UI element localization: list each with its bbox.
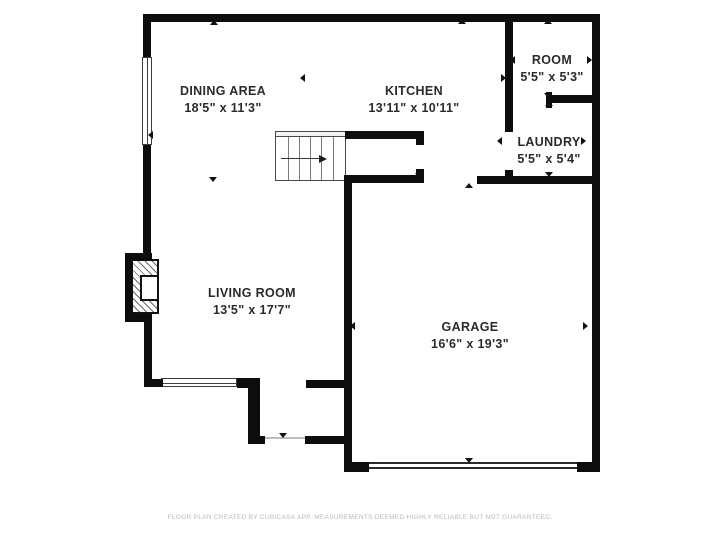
wall-segment bbox=[345, 131, 424, 139]
wall-segment bbox=[248, 436, 265, 444]
room-name: LIVING ROOM bbox=[208, 285, 296, 302]
wall-segment bbox=[144, 314, 152, 387]
fireplace-firebox bbox=[140, 275, 159, 301]
wall-segment bbox=[477, 176, 600, 184]
stair-direction-arrow bbox=[281, 158, 319, 159]
dimension-tick-icon bbox=[209, 177, 217, 182]
dimension-tick-icon bbox=[279, 433, 287, 438]
wall-segment bbox=[416, 131, 424, 145]
wall-segment bbox=[306, 380, 345, 388]
dimension-tick-icon bbox=[415, 173, 423, 178]
room-dimensions: 5'5" x 5'4" bbox=[517, 151, 580, 168]
dimension-tick-icon bbox=[148, 131, 153, 139]
wall-segment bbox=[125, 253, 133, 322]
staircase bbox=[275, 131, 346, 181]
room-dimensions: 13'5" x 17'7" bbox=[208, 302, 296, 319]
room-label-dining-area: DINING AREA 18'5" x 11'3" bbox=[180, 83, 266, 117]
window-glass-line bbox=[162, 383, 236, 384]
dimension-tick-icon bbox=[581, 137, 586, 145]
wall-segment bbox=[143, 145, 151, 261]
dimension-tick-icon bbox=[501, 74, 506, 82]
room-label-garage: GARAGE 16'6" x 19'3" bbox=[431, 319, 509, 353]
wall-segment bbox=[248, 380, 260, 444]
room-name: LAUNDRY bbox=[517, 134, 580, 151]
wall-segment bbox=[143, 14, 151, 57]
dimension-tick-icon bbox=[545, 101, 553, 106]
dimension-tick-icon bbox=[210, 20, 218, 25]
room-label-living-room: LIVING ROOM 13'5" x 17'7" bbox=[208, 285, 296, 319]
garage-door-line bbox=[369, 462, 577, 469]
dimension-tick-icon bbox=[350, 322, 355, 330]
dimension-tick-icon bbox=[544, 19, 552, 24]
wall-segment bbox=[144, 379, 163, 387]
dimension-tick-icon bbox=[497, 137, 502, 145]
dimension-tick-icon bbox=[458, 19, 466, 24]
dimension-tick-icon bbox=[545, 172, 553, 177]
stair-arrow-head-icon bbox=[319, 155, 327, 163]
room-name: ROOM bbox=[520, 52, 583, 69]
wall-segment bbox=[345, 175, 424, 183]
dimension-tick-icon bbox=[510, 56, 515, 64]
wall-segment bbox=[549, 95, 592, 103]
floor-plan: DINING AREA 18'5" x 11'3" KITCHEN 13'11"… bbox=[0, 0, 720, 540]
room-name: DINING AREA bbox=[180, 83, 266, 100]
dimension-tick-icon bbox=[587, 56, 592, 64]
room-name: GARAGE bbox=[431, 319, 509, 336]
dimension-tick-icon bbox=[583, 322, 588, 330]
dimension-tick-icon bbox=[465, 183, 473, 188]
dimension-tick-icon bbox=[300, 74, 305, 82]
room-dimensions: 13'11" x 10'11" bbox=[368, 100, 459, 117]
wall-segment bbox=[344, 462, 369, 472]
room-dimensions: 5'5" x 5'3" bbox=[520, 69, 583, 86]
footer-disclaimer: FLOOR PLAN CREATED BY CUBICASA APP. MEAS… bbox=[168, 514, 553, 521]
room-name: KITCHEN bbox=[368, 83, 459, 100]
stair-tread-line bbox=[333, 137, 334, 180]
dimension-tick-icon bbox=[465, 458, 473, 463]
dimension-tick-icon bbox=[544, 93, 552, 98]
room-label-room: ROOM 5'5" x 5'3" bbox=[520, 52, 583, 86]
room-dimensions: 18'5" x 11'3" bbox=[180, 100, 266, 117]
wall-segment bbox=[592, 14, 600, 472]
wall-segment bbox=[505, 170, 513, 184]
room-label-kitchen: KITCHEN 13'11" x 10'11" bbox=[368, 83, 459, 117]
room-label-laundry: LAUNDRY 5'5" x 5'4" bbox=[517, 134, 580, 168]
room-dimensions: 16'6" x 19'3" bbox=[431, 336, 509, 353]
wall-segment bbox=[505, 14, 513, 132]
